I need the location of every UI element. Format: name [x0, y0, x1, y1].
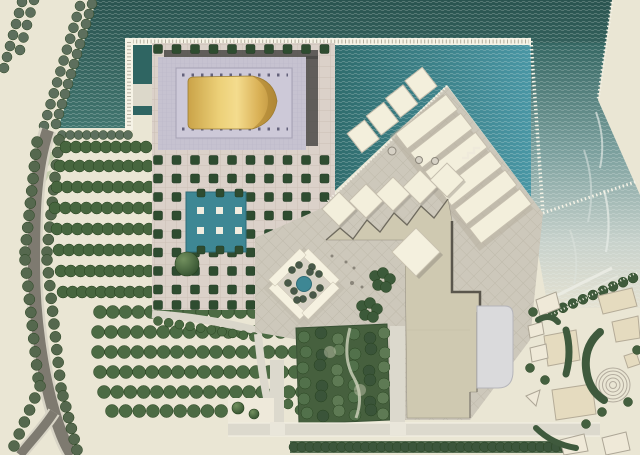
tree-icon: [378, 327, 390, 339]
tree-icon: [307, 269, 314, 276]
tree-icon: [22, 281, 33, 292]
tree-icon: [582, 420, 591, 429]
tree-icon: [31, 359, 42, 370]
tree-icon: [69, 434, 80, 445]
tree-icon: [0, 63, 9, 73]
tree-icon: [26, 8, 36, 18]
tree-icon: [164, 318, 173, 327]
tree-icon: [310, 292, 317, 299]
tree-icon: [69, 59, 79, 69]
tree-icon: [29, 161, 40, 172]
museum-annex: [477, 306, 513, 388]
tree-icon: [224, 366, 237, 379]
tree-icon: [378, 378, 390, 390]
tree-icon: [50, 331, 61, 342]
tree-icon: [283, 45, 292, 54]
tree-icon: [43, 267, 54, 278]
tree-icon: [301, 407, 313, 419]
tree-icon: [320, 156, 329, 165]
tree-icon: [57, 99, 67, 109]
circle: [432, 158, 439, 165]
polygon: [544, 330, 580, 366]
tree-icon: [107, 131, 116, 140]
tree-icon: [66, 423, 77, 434]
tree-icon: [172, 174, 181, 183]
tree-icon: [154, 248, 163, 257]
tree-icon: [72, 445, 83, 455]
tree-icon: [72, 49, 82, 59]
tree-icon: [197, 189, 205, 197]
orchard-row: [60, 141, 152, 153]
tree-icon: [118, 326, 131, 339]
tree-icon: [228, 329, 237, 338]
tree-icon: [237, 366, 250, 379]
tree-icon: [246, 174, 255, 183]
tree-icon: [30, 346, 41, 357]
tree-icon: [209, 267, 218, 276]
tree-icon: [209, 301, 218, 310]
tree-icon: [24, 294, 35, 305]
tree-icon: [8, 30, 18, 40]
tree-icon: [42, 255, 53, 266]
tree-icon: [160, 405, 173, 418]
tree-icon: [81, 19, 91, 29]
tree-icon: [265, 193, 274, 202]
tree-icon: [25, 198, 36, 209]
tree-icon: [332, 333, 344, 345]
tree-icon: [106, 405, 119, 418]
tree-icon: [529, 308, 538, 317]
tree-icon: [66, 131, 75, 140]
tree-icon: [209, 285, 218, 294]
tree-icon: [105, 346, 118, 359]
circle: [232, 402, 244, 414]
tree-icon: [146, 366, 159, 379]
tree-icon: [107, 366, 120, 379]
tree-icon: [294, 297, 301, 304]
tree-icon: [144, 326, 157, 339]
tree-icon: [315, 327, 327, 339]
tree-icon: [14, 8, 24, 18]
tree-icon: [228, 45, 237, 54]
tree-icon: [172, 193, 181, 202]
tree-icon: [526, 364, 535, 373]
rect: [235, 227, 242, 234]
tree-icon: [239, 331, 248, 340]
tree-icon: [191, 285, 200, 294]
tree-icon: [183, 346, 196, 359]
tree-icon: [300, 346, 312, 358]
tree-icon: [75, 1, 85, 11]
tree-icon: [365, 343, 377, 355]
tree-icon: [378, 361, 390, 373]
tree-icon: [207, 325, 216, 334]
tree-icon: [115, 131, 124, 140]
tree-icon: [150, 386, 163, 399]
tree-icon: [235, 189, 243, 197]
tree-icon: [154, 317, 163, 326]
tree-icon: [320, 174, 329, 183]
tree-icon: [633, 346, 640, 355]
tree-icon: [228, 267, 237, 276]
tree-icon: [331, 364, 343, 376]
tree-icon: [198, 366, 211, 379]
tree-icon: [297, 362, 309, 374]
tree-icon: [65, 34, 75, 44]
tree-icon: [131, 326, 144, 339]
tree-icon: [124, 131, 133, 140]
tree-icon: [22, 20, 32, 30]
tree-icon: [228, 285, 237, 294]
large-tree: [175, 252, 199, 276]
tree-icon: [154, 45, 163, 54]
tree-icon: [60, 401, 71, 412]
tree-icon: [377, 392, 389, 404]
tree-icon: [120, 366, 133, 379]
tree-icon: [21, 268, 32, 279]
tree-icon: [58, 391, 69, 402]
tree-icon: [246, 285, 255, 294]
tree-icon: [265, 211, 274, 220]
tree-icon: [63, 412, 74, 423]
rect: [216, 227, 223, 234]
tree-icon: [105, 326, 118, 339]
rect: [216, 207, 223, 214]
tree-icon: [246, 230, 255, 239]
tree-icon: [19, 33, 29, 43]
road-vertical-east: [390, 326, 405, 428]
tree-icon: [28, 173, 39, 184]
tree-icon: [283, 193, 292, 202]
tree-icon: [377, 408, 389, 420]
tree-icon: [144, 346, 157, 359]
tree-icon: [211, 366, 224, 379]
tree-icon: [265, 174, 274, 183]
tree-icon: [63, 79, 73, 89]
tree-icon: [87, 0, 97, 9]
tree-icon: [243, 386, 256, 399]
tree-icon: [598, 408, 607, 417]
tree-icon: [66, 69, 76, 79]
tree-icon: [174, 405, 187, 418]
tree-icon: [541, 376, 550, 385]
tree-icon: [302, 174, 311, 183]
tree-icon: [285, 280, 292, 287]
tree-icon: [119, 405, 132, 418]
tree-icon: [154, 211, 163, 220]
pool-planter: [197, 207, 204, 214]
tree-icon: [46, 293, 57, 304]
tree-icon: [124, 386, 137, 399]
tree-icon: [216, 246, 224, 254]
tree-icon: [333, 405, 345, 417]
tree-icon: [159, 366, 172, 379]
tree-icon: [175, 320, 184, 329]
tree-icon: [223, 346, 236, 359]
tree-icon: [146, 405, 159, 418]
tree-icon: [368, 312, 379, 323]
tree-icon: [60, 89, 70, 99]
tree-icon: [49, 88, 59, 98]
tree-icon: [22, 222, 33, 233]
promenade-trees: [58, 131, 133, 140]
tree-icon: [82, 131, 91, 140]
tree-icon: [118, 346, 131, 359]
tree-icon: [27, 320, 38, 331]
tree-icon: [302, 156, 311, 165]
tree-icon: [154, 285, 163, 294]
tree-icon: [24, 405, 35, 416]
tree-icon: [47, 306, 58, 317]
tree-icon: [317, 285, 324, 292]
tree-icon: [154, 267, 163, 276]
tree-icon: [62, 45, 72, 55]
tree-icon: [172, 230, 181, 239]
rect: [197, 227, 204, 234]
tree-icon: [98, 386, 111, 399]
tree-icon: [230, 386, 243, 399]
tree-icon: [131, 346, 144, 359]
tree-icon: [316, 271, 323, 278]
tree-icon: [381, 282, 392, 293]
tree-icon: [191, 174, 200, 183]
courtyard-pool: [297, 277, 312, 292]
tree-icon: [317, 410, 329, 422]
tree-icon: [296, 262, 303, 269]
tree-icon: [216, 189, 224, 197]
tree-icon: [365, 404, 377, 416]
tree-icon: [172, 285, 181, 294]
tree-icon: [52, 77, 62, 87]
circle: [361, 286, 364, 289]
tree-icon: [99, 131, 108, 140]
path: [566, 330, 569, 374]
tree-icon: [246, 193, 255, 202]
tree-icon: [209, 174, 218, 183]
tree-icon: [203, 386, 216, 399]
tree-icon: [228, 301, 237, 310]
tree-icon: [265, 45, 274, 54]
tree-icon: [283, 211, 292, 220]
tree-icon: [246, 211, 255, 220]
tree-icon: [228, 174, 237, 183]
tree-icon: [246, 267, 255, 276]
tree-icon: [190, 386, 203, 399]
circle: [249, 409, 259, 419]
tree-icon: [235, 246, 243, 254]
tree-icon: [137, 386, 150, 399]
tree-icon: [172, 366, 185, 379]
pavilion-shadow-east: [306, 56, 318, 146]
tree-icon: [154, 174, 163, 183]
tree-icon: [154, 156, 163, 165]
tree-icon: [24, 210, 35, 221]
tree-icon: [91, 131, 100, 140]
tree-icon: [133, 366, 146, 379]
tree-icon: [5, 41, 15, 51]
tree-icon: [191, 156, 200, 165]
tree-icon: [186, 322, 195, 331]
tree-icon: [154, 230, 163, 239]
tree-icon: [187, 405, 200, 418]
tree-icon: [246, 45, 255, 54]
tree-icon: [170, 346, 183, 359]
tree-icon: [197, 246, 205, 254]
tree-icon: [302, 193, 311, 202]
tree-icon: [94, 366, 107, 379]
tree-icon: [282, 386, 295, 399]
tree-icon: [624, 398, 633, 407]
tree-icon: [291, 288, 298, 295]
tree-icon: [54, 109, 64, 119]
tree-icon: [298, 331, 310, 343]
tree-icon: [28, 333, 39, 344]
rect: [235, 207, 242, 214]
tree-icon: [51, 119, 61, 129]
tree-icon: [49, 319, 60, 330]
tree-icon: [172, 301, 181, 310]
tree-icon: [246, 156, 255, 165]
promenade-west: [125, 38, 133, 130]
tree-icon: [210, 346, 223, 359]
circle: [350, 281, 354, 285]
tree-icon: [32, 137, 43, 148]
tree-icon: [2, 52, 12, 62]
tree-icon: [111, 386, 124, 399]
rect: [270, 423, 285, 436]
footbridge: [133, 84, 152, 106]
circle: [416, 157, 423, 164]
tree-icon: [19, 417, 30, 428]
tree-icon: [75, 39, 85, 49]
tree-icon: [154, 193, 163, 202]
site-plan-rendering: [0, 0, 640, 455]
tree-icon: [218, 327, 227, 336]
tree-icon: [43, 234, 54, 245]
tree-icon: [289, 267, 296, 274]
tree-icon: [35, 381, 46, 392]
circle: [331, 255, 334, 258]
tree-icon: [46, 99, 56, 109]
tree-icon: [364, 332, 376, 344]
tree-icon: [283, 174, 292, 183]
site-plan-canvas: [0, 0, 640, 455]
tree-icon: [25, 307, 36, 318]
tree-icon: [14, 429, 25, 440]
circle: [324, 346, 336, 358]
tree-icon: [157, 346, 170, 359]
tree-icon: [26, 185, 37, 196]
circle: [354, 384, 366, 396]
tree-icon: [315, 390, 327, 402]
tree-icon: [314, 359, 326, 371]
tree-icon: [74, 131, 83, 140]
tree-icon: [68, 23, 78, 33]
tree-icon: [119, 306, 132, 319]
tree-icon: [30, 149, 41, 160]
tree-icon: [215, 405, 228, 418]
tree-icon: [196, 324, 205, 333]
tree-icon: [21, 234, 32, 245]
tree-icon: [191, 45, 200, 54]
circle: [353, 267, 356, 270]
tree-icon: [299, 377, 311, 389]
tree-icon: [78, 29, 88, 39]
tree-icon: [320, 45, 329, 54]
tree-icon: [379, 347, 391, 359]
tree-icon: [164, 386, 177, 399]
tree-icon: [209, 156, 218, 165]
tree-icon: [283, 156, 292, 165]
tree-icon: [84, 9, 94, 19]
tree-icon: [172, 45, 181, 54]
tree-icon: [228, 156, 237, 165]
tree-icon: [140, 141, 152, 153]
tree-icon: [332, 375, 344, 387]
tree-icon: [92, 346, 105, 359]
crosswalk: [390, 423, 406, 436]
tree-icon: [44, 280, 55, 291]
tree-icon: [9, 441, 20, 452]
tree-icon: [29, 393, 40, 404]
tree-icon: [246, 301, 255, 310]
tree-icon: [59, 56, 69, 66]
tree-icon: [201, 405, 214, 418]
skylight: [388, 147, 396, 155]
tree-icon: [177, 386, 190, 399]
tree-icon: [265, 156, 274, 165]
tree-icon: [53, 357, 64, 368]
tree-icon: [132, 306, 145, 319]
tree-icon: [196, 346, 209, 359]
plaza-pool: [186, 192, 246, 252]
tree-icon: [275, 346, 288, 359]
tree-icon: [92, 326, 105, 339]
tree-icon: [154, 301, 163, 310]
tree-icon: [246, 248, 255, 257]
tree-icon: [298, 393, 310, 405]
tree-icon: [236, 346, 249, 359]
tree-icon: [283, 399, 293, 409]
tree-icon: [106, 306, 119, 319]
tree-icon: [94, 306, 107, 319]
tree-icon: [618, 277, 628, 287]
tree-icon: [349, 348, 361, 360]
tree-icon: [20, 255, 31, 266]
tree-icon: [302, 45, 311, 54]
tree-icon: [216, 386, 229, 399]
tree-icon: [209, 45, 218, 54]
tree-icon: [11, 19, 21, 29]
tree-icon: [72, 12, 82, 22]
tree-icon: [608, 282, 618, 292]
tree-icon: [172, 211, 181, 220]
circle: [345, 261, 348, 264]
tree-icon: [364, 374, 376, 386]
tree-icon: [185, 366, 198, 379]
scene-root: [0, 0, 640, 455]
tree-icon: [55, 66, 65, 76]
tree-icon: [15, 45, 25, 55]
tree-icon: [54, 370, 65, 381]
tree-icon: [133, 405, 146, 418]
tree-icon: [191, 301, 200, 310]
tree-icon: [51, 344, 62, 355]
tree-icon: [42, 110, 52, 120]
tree-icon: [172, 156, 181, 165]
